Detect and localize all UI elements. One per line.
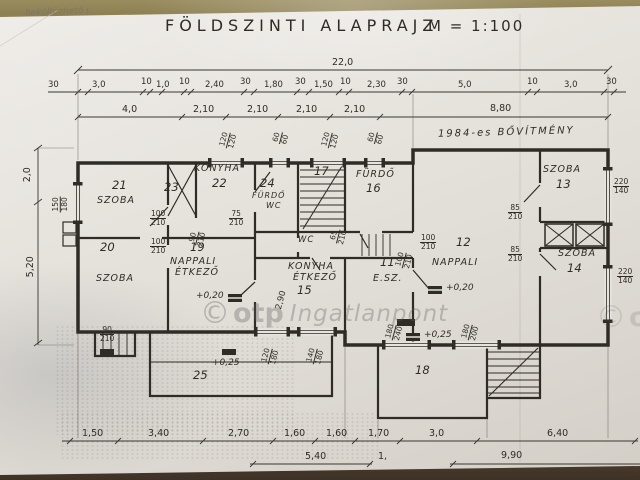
opening-size: 85210 [508, 246, 522, 263]
chimney-symbol [63, 222, 76, 246]
level-mark: +0,20 [446, 284, 474, 293]
dim: 30 [295, 78, 306, 87]
room-15-name2: ÉTKEZŐ [293, 273, 337, 283]
opening-size: 100210 [150, 238, 166, 255]
dim: 3,40 [148, 429, 169, 439]
room-14-name: SZOBA [558, 249, 596, 259]
dim: 2,10 [193, 105, 214, 115]
dim: 9,90 [501, 451, 522, 461]
dim: 10 [179, 78, 190, 87]
entry-stairs [488, 348, 539, 396]
dim: 1,80 [264, 81, 283, 90]
dim: 5,40 [305, 452, 326, 462]
thresholds [100, 319, 415, 355]
opening-size: 150180 [52, 196, 69, 212]
room-15-name: KONYHA [288, 262, 334, 272]
room-19-name2: ÉTKEZŐ [175, 268, 219, 278]
dim: 30 [240, 78, 251, 87]
opening-size: 220140 [617, 268, 633, 285]
room-wc-name: WC [298, 236, 314, 245]
room-11-name: E.SZ. [373, 274, 403, 284]
level-mark: +0,25 [424, 331, 452, 340]
room-22-number: 22 [212, 178, 227, 190]
drawing-scale: M = 1:100 [428, 19, 524, 34]
dim: 30 [397, 78, 408, 87]
opening-size: 85210 [508, 204, 522, 221]
dim: 1,60 [326, 429, 347, 439]
room-17-number: 17 [314, 166, 329, 178]
dim: 30 [606, 78, 617, 87]
room-11-number: 11 [380, 257, 395, 269]
dim: 3,0 [564, 81, 578, 90]
dim: 1, [378, 452, 387, 462]
dim: 5,0 [458, 81, 472, 90]
dim: 2,0 [23, 167, 33, 182]
dim: 1,70 [368, 429, 389, 439]
dim: 8,80 [490, 104, 511, 114]
dim: 2,70 [228, 429, 249, 439]
room-15-number: 15 [297, 285, 312, 297]
opening-size: 75210 [229, 210, 243, 227]
room-24-name: FÜRDŐ [252, 192, 285, 200]
dim: 3,0 [429, 429, 444, 439]
dim: 4,0 [122, 105, 137, 115]
dim: 6,40 [547, 429, 568, 439]
room-24-number: 24 [260, 178, 275, 190]
room-23-number: 23 [164, 182, 179, 194]
room-13-number: 13 [556, 179, 571, 191]
room-12-name: NAPPALI [432, 258, 478, 268]
opening-size: 220140 [613, 178, 629, 195]
dim: 2,40 [205, 81, 224, 90]
dim: 2,10 [247, 105, 268, 115]
room-21-number: 21 [112, 180, 127, 192]
room-25-number: 25 [193, 370, 208, 382]
dim: 1,50 [314, 81, 333, 90]
dim: 2,10 [296, 105, 317, 115]
dim: 5,20 [26, 256, 36, 277]
opening-size: 100210 [420, 234, 436, 251]
opening-size: 90210 [100, 326, 114, 343]
level-mark: +0,20 [196, 292, 224, 301]
drawing-title: FÖLDSZINTI ALAPRAJZ [165, 18, 438, 34]
room-12-number: 12 [456, 237, 471, 249]
room-24-name2: WC [266, 202, 282, 210]
dim: 2,10 [344, 105, 365, 115]
dim: 30 [48, 81, 59, 90]
dim: 2,30 [367, 81, 386, 90]
floor-plan-drawing [0, 0, 640, 480]
opening-size: 100210 [150, 210, 166, 227]
room-20-name: SZOBA [96, 274, 134, 284]
level-mark: +0,25 [212, 359, 240, 368]
room-16-number: 16 [366, 183, 381, 195]
room-16-name: FÜRDŐ [356, 170, 395, 180]
room-18-number: 18 [415, 365, 430, 377]
scanned-floor-plan-photo: FÖLDSZINTI ALAPRAJZ M = 1:100 beköltözhe… [0, 0, 640, 480]
room-14-number: 14 [567, 263, 582, 275]
room-21-name: SZOBA [97, 196, 135, 206]
room-19-name: NAPPALI [170, 257, 216, 267]
dim: 10 [340, 78, 351, 87]
dim: 3,0 [92, 81, 106, 90]
dim: 1,0 [156, 81, 170, 90]
dim: 10 [527, 78, 538, 87]
room-22-name: KONYHA [194, 164, 240, 174]
dim: 10 [141, 78, 152, 87]
room-13-name: SZOBA [543, 165, 581, 175]
builtin-closets [545, 224, 604, 246]
dim-overall: 22,0 [332, 58, 353, 68]
room-20-number: 20 [100, 242, 115, 254]
dim: 1,60 [284, 429, 305, 439]
dim: 1,50 [82, 429, 103, 439]
